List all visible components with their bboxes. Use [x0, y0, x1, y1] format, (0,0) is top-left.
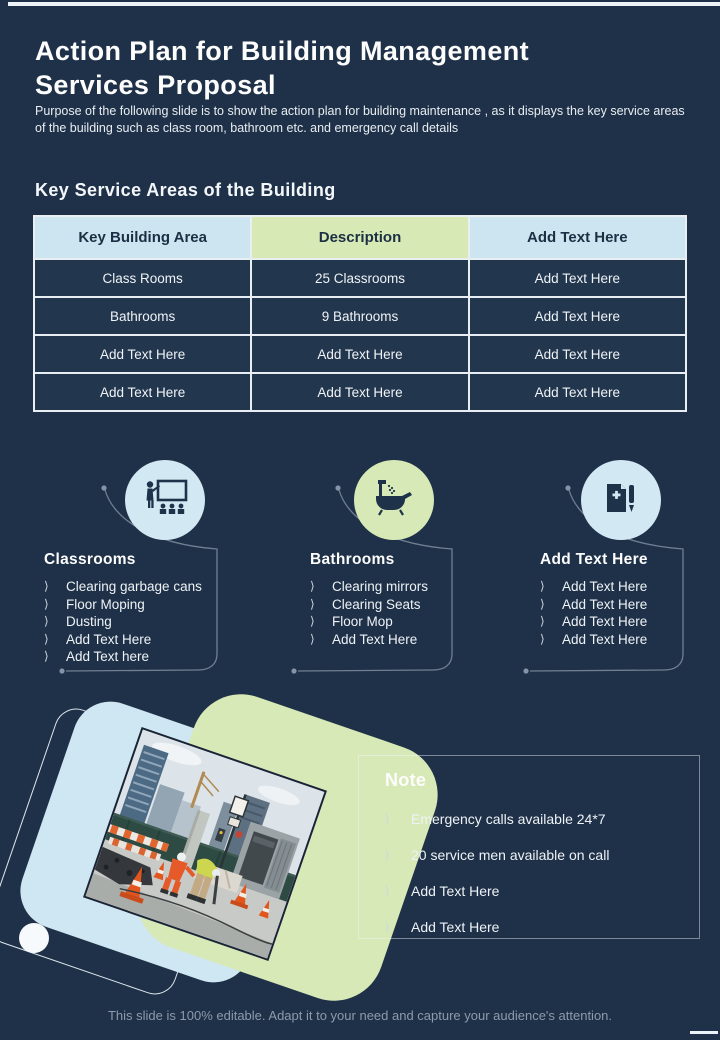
note-panel: Note ⟩Emergency calls available 24*7 ⟩20… [358, 755, 700, 939]
key-areas-table: Key Building Area Description Add Text H… [33, 215, 687, 412]
area-title: Add Text Here [540, 551, 720, 569]
table-row: Class Rooms 25 Classrooms Add Text Here [34, 259, 686, 297]
chevron-bullet-icon: ⟩ [44, 613, 66, 631]
list-item-placeholder[interactable]: ⟩Add Text Here [540, 578, 720, 596]
col-header-key-building-area: Key Building Area [34, 216, 251, 259]
service-area-add-text: Add Text Here ⟩Add Text Here ⟩Add Text H… [540, 551, 720, 648]
chevron-bullet-icon: ⟩ [310, 596, 332, 614]
table-cell-placeholder[interactable]: Add Text Here [34, 335, 251, 373]
classrooms-circle [125, 460, 205, 540]
chevron-bullet-icon: ⟩ [44, 578, 66, 596]
chevron-bullet-icon: ⟩ [540, 578, 562, 596]
chevron-bullet-icon: ⟩ [540, 631, 562, 649]
table-header-row: Key Building Area Description Add Text H… [34, 216, 686, 259]
table-cell: Class Rooms [34, 259, 251, 297]
table-cell-placeholder[interactable]: Add Text Here [469, 335, 686, 373]
list-item-placeholder[interactable]: ⟩Add Text Here [540, 613, 720, 631]
slide-bottom-dash [690, 1031, 718, 1034]
note-item: ⟩Emergency calls available 24*7 [385, 811, 679, 827]
list-item: ⟩Dusting [44, 613, 259, 631]
editable-footnote: This slide is 100% editable. Adapt it to… [0, 1008, 720, 1023]
bathrooms-circle [354, 460, 434, 540]
col-header-add-text[interactable]: Add Text Here [469, 216, 686, 259]
decor-white-circle [19, 923, 49, 953]
table-row: Add Text Here Add Text Here Add Text Her… [34, 373, 686, 411]
list-item: ⟩Floor Mop [310, 613, 525, 631]
chevron-bullet-icon: ⟩ [540, 613, 562, 631]
table-cell-placeholder[interactable]: Add Text Here [469, 259, 686, 297]
chevron-bullet-icon: ⟩ [310, 578, 332, 596]
list-item-placeholder[interactable]: ⟩Add Text Here [540, 631, 720, 649]
chevron-bullet-icon: ⟩ [385, 847, 411, 863]
section-heading: Key Service Areas of the Building [35, 180, 336, 201]
col-header-description: Description [251, 216, 468, 259]
chevron-bullet-icon: ⟩ [44, 596, 66, 614]
note-item: ⟩20 service men available on call [385, 847, 679, 863]
list-item-placeholder[interactable]: ⟩Add Text here [44, 648, 259, 666]
note-item-placeholder[interactable]: ⟩Add Text Here [385, 883, 679, 899]
list-item: ⟩Clearing Seats [310, 596, 525, 614]
classroom-presentation-icon [142, 479, 188, 522]
chevron-bullet-icon: ⟩ [540, 596, 562, 614]
chevron-bullet-icon: ⟩ [310, 631, 332, 649]
list-item-placeholder[interactable]: ⟩Add Text Here [44, 631, 259, 649]
purpose-text: Purpose of the following slide is to sho… [35, 103, 690, 137]
table-row: Bathrooms 9 Bathrooms Add Text Here [34, 297, 686, 335]
bathtub-shower-icon [372, 478, 416, 523]
note-title: Note [385, 770, 679, 791]
chevron-bullet-icon: ⟩ [44, 631, 66, 649]
note-item-placeholder[interactable]: ⟩Add Text Here [385, 919, 679, 935]
list-item: ⟩Clearing mirrors [310, 578, 525, 596]
chevron-bullet-icon: ⟩ [385, 919, 411, 935]
table-cell-placeholder[interactable]: Add Text Here [469, 297, 686, 335]
table-cell: 9 Bathrooms [251, 297, 468, 335]
table-cell-placeholder[interactable]: Add Text Here [251, 335, 468, 373]
add-text-circle [581, 460, 661, 540]
chevron-bullet-icon: ⟩ [44, 648, 66, 666]
area-title: Classrooms [44, 551, 259, 569]
chevron-bullet-icon: ⟩ [310, 613, 332, 631]
slide-title: Action Plan for Building Management Serv… [35, 34, 580, 102]
document-pen-icon [602, 479, 640, 522]
table-row: Add Text Here Add Text Here Add Text Her… [34, 335, 686, 373]
table-cell-placeholder[interactable]: Add Text Here [251, 373, 468, 411]
list-item-placeholder[interactable]: ⟩Add Text Here [310, 631, 525, 649]
slide-top-border [8, 2, 720, 6]
list-item: ⟩Floor Moping [44, 596, 259, 614]
list-item-placeholder[interactable]: ⟩Add Text Here [540, 596, 720, 614]
chevron-bullet-icon: ⟩ [385, 811, 411, 827]
chevron-bullet-icon: ⟩ [385, 883, 411, 899]
area-title: Bathrooms [310, 551, 525, 569]
table-cell-placeholder[interactable]: Add Text Here [469, 373, 686, 411]
service-area-classrooms: Classrooms ⟩Clearing garbage cans ⟩Floor… [44, 551, 259, 666]
table-cell-placeholder[interactable]: Add Text Here [34, 373, 251, 411]
table-cell: Bathrooms [34, 297, 251, 335]
list-item: ⟩Clearing garbage cans [44, 578, 259, 596]
table-cell: 25 Classrooms [251, 259, 468, 297]
service-area-bathrooms: Bathrooms ⟩Clearing mirrors ⟩Clearing Se… [310, 551, 525, 648]
